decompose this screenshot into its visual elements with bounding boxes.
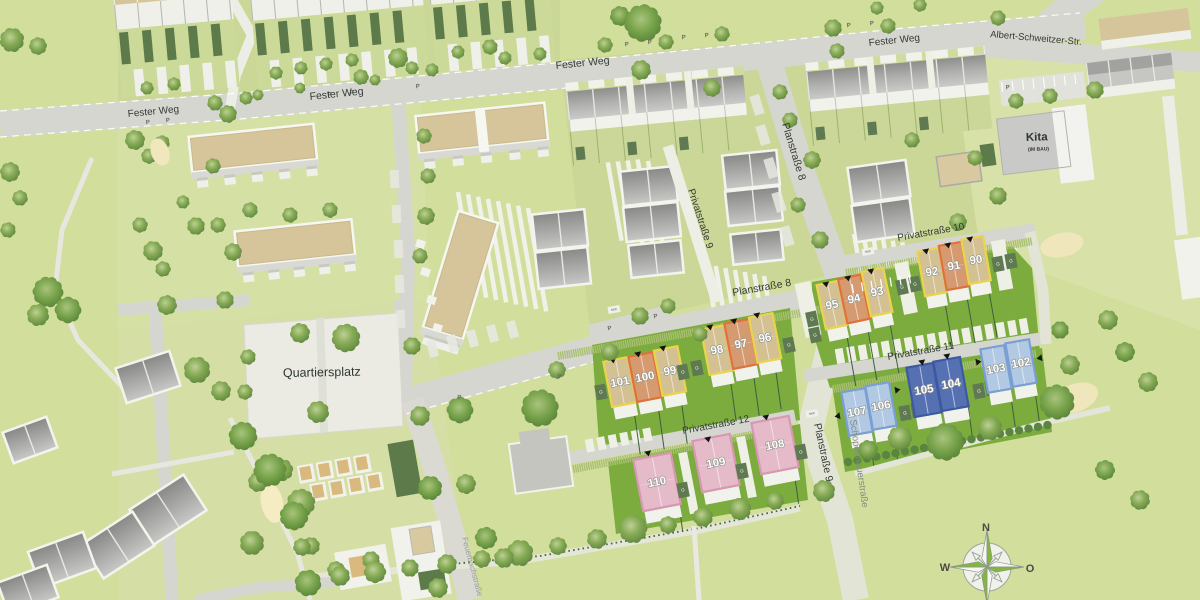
svg-text:N: N bbox=[982, 522, 990, 534]
svg-text:96: 96 bbox=[758, 331, 773, 345]
svg-text:P: P bbox=[682, 35, 687, 41]
svg-text:(IM BAU): (IM BAU) bbox=[1028, 146, 1050, 153]
svg-text:P: P bbox=[1006, 85, 1011, 91]
svg-text:P: P bbox=[648, 40, 653, 46]
svg-text:P: P bbox=[416, 84, 421, 90]
svg-text:P: P bbox=[166, 118, 171, 124]
svg-text:O: O bbox=[1026, 563, 1035, 575]
svg-text:92: 92 bbox=[925, 265, 940, 279]
svg-text:P: P bbox=[847, 23, 852, 29]
svg-text:97: 97 bbox=[734, 337, 749, 351]
svg-text:P: P bbox=[146, 120, 151, 126]
svg-text:Quartiersplatz: Quartiersplatz bbox=[283, 365, 361, 380]
svg-text:W: W bbox=[940, 562, 951, 574]
svg-text:P: P bbox=[625, 42, 630, 48]
svg-text:99: 99 bbox=[663, 364, 678, 378]
svg-text:90: 90 bbox=[969, 253, 984, 267]
svg-text:Kita: Kita bbox=[1026, 131, 1049, 144]
svg-text:P: P bbox=[705, 33, 710, 39]
svg-text:P: P bbox=[870, 21, 875, 27]
